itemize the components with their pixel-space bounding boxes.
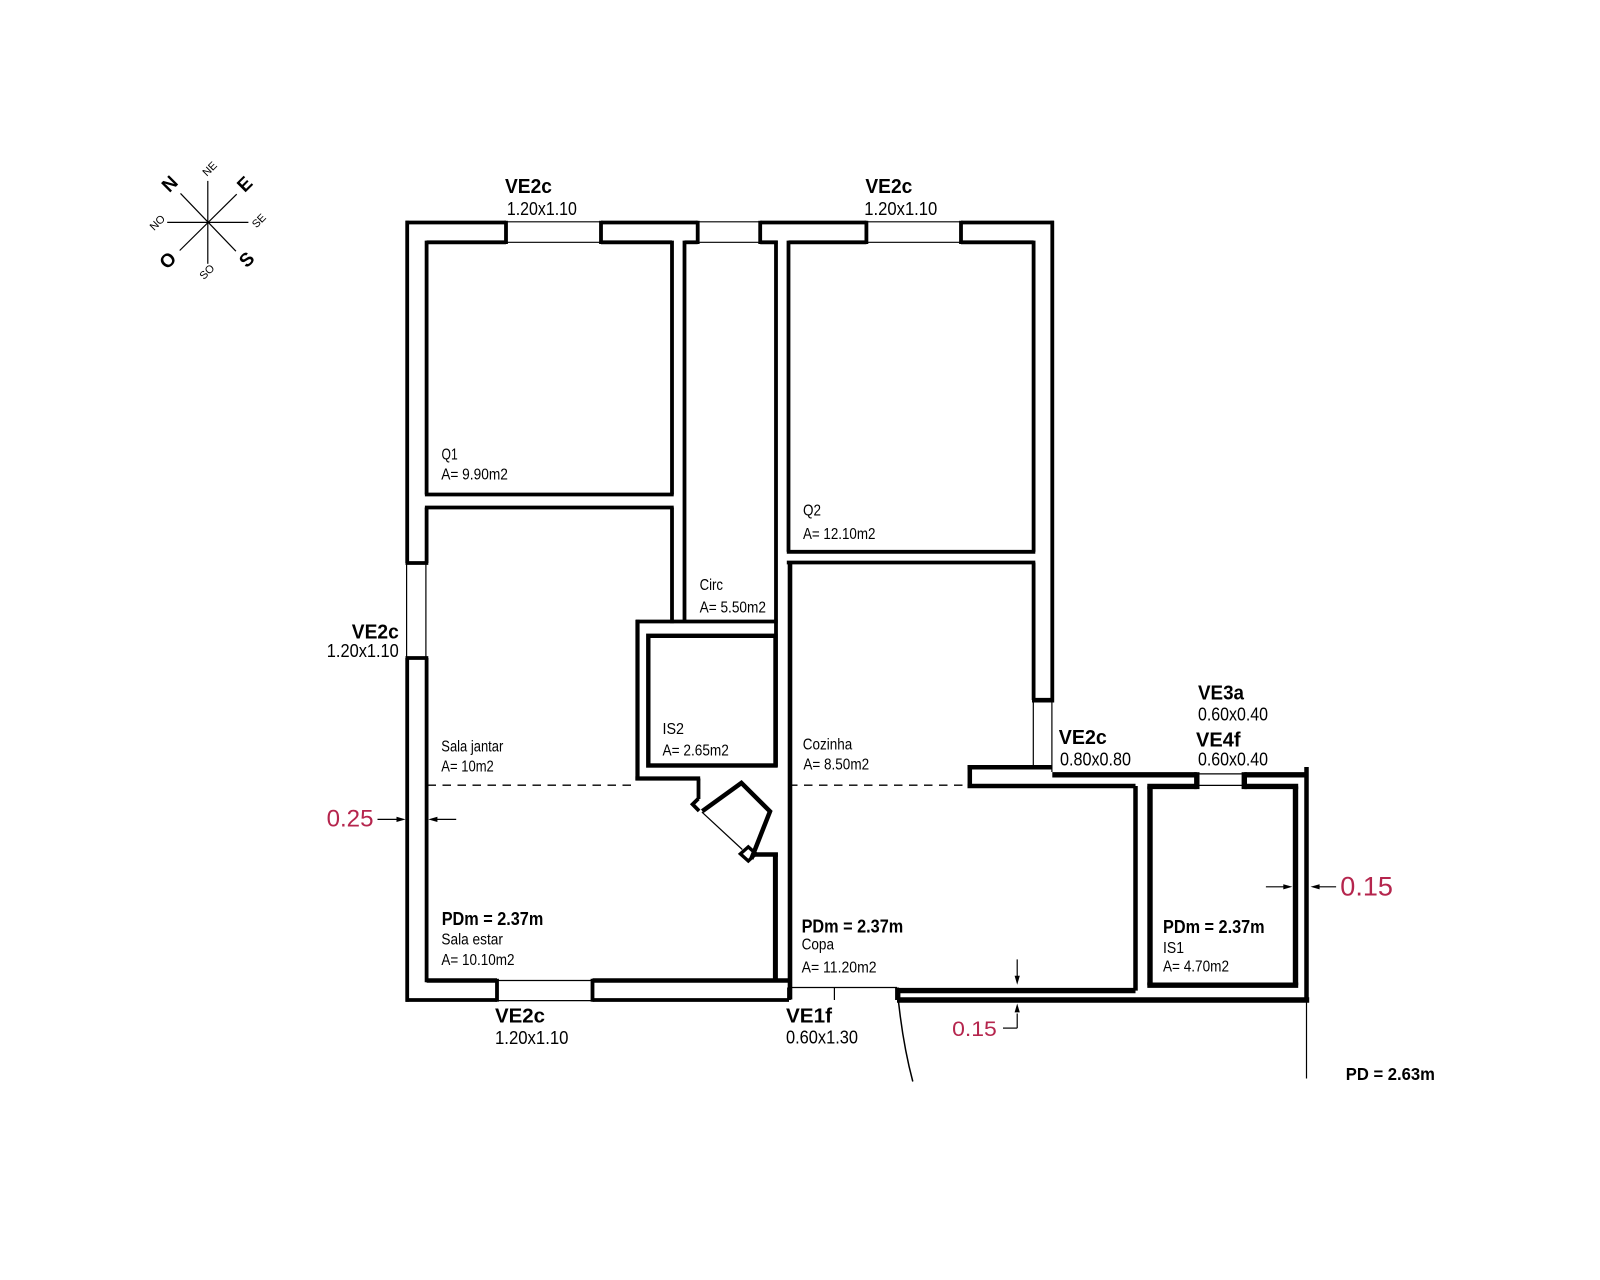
svg-text:VE1f: VE1f (786, 1006, 832, 1028)
svg-text:PDm = 2.37m: PDm = 2.37m (802, 917, 904, 937)
svg-text:0.80x0.80: 0.80x0.80 (1060, 750, 1131, 770)
svg-text:PDm = 2.37m: PDm = 2.37m (1163, 917, 1265, 937)
svg-text:A= 8.50m2: A= 8.50m2 (803, 757, 869, 774)
svg-text:A= 2.65m2: A= 2.65m2 (663, 743, 729, 760)
svg-text:IS1: IS1 (1163, 940, 1184, 957)
svg-text:Circ: Circ (700, 577, 724, 594)
svg-text:A= 10.10m2: A= 10.10m2 (441, 952, 514, 969)
svg-text:Cozinha: Cozinha (803, 737, 853, 754)
svg-text:PD = 2.63m: PD = 2.63m (1346, 1064, 1435, 1084)
svg-text:1.20x1.10: 1.20x1.10 (864, 199, 937, 219)
svg-text:VE2c: VE2c (495, 1006, 545, 1028)
svg-text:A= 10m2: A= 10m2 (441, 759, 494, 776)
svg-text:1.20x1.10: 1.20x1.10 (327, 641, 399, 661)
svg-text:0.60x1.30: 0.60x1.30 (786, 1028, 858, 1048)
svg-text:VE4f: VE4f (1196, 730, 1241, 752)
svg-text:A= 12.10m2: A= 12.10m2 (803, 526, 875, 543)
svg-text:1.20x1.10: 1.20x1.10 (507, 199, 577, 219)
svg-text:A= 5.50m2: A= 5.50m2 (700, 600, 766, 617)
svg-text:0.25: 0.25 (327, 806, 374, 833)
svg-text:VE3a: VE3a (1198, 683, 1245, 705)
svg-text:1.20x1.10: 1.20x1.10 (495, 1028, 569, 1048)
svg-text:Q1: Q1 (442, 447, 458, 464)
svg-text:0.15: 0.15 (1340, 872, 1393, 902)
svg-text:A= 4.70m2: A= 4.70m2 (1163, 959, 1229, 976)
svg-text:A= 9.90m2: A= 9.90m2 (441, 467, 508, 484)
svg-text:IS2: IS2 (663, 721, 685, 738)
svg-text:VE2c: VE2c (1059, 727, 1107, 749)
svg-text:0.60x0.40: 0.60x0.40 (1198, 750, 1268, 770)
svg-text:A= 11.20m2: A= 11.20m2 (802, 960, 877, 977)
svg-text:Q2: Q2 (803, 503, 821, 520)
svg-text:0.15: 0.15 (952, 1017, 997, 1041)
svg-text:PDm = 2.37m: PDm = 2.37m (442, 909, 544, 929)
svg-text:Copa: Copa (802, 937, 835, 954)
svg-text:Sala jantar: Sala jantar (441, 739, 503, 756)
svg-text:Sala estar: Sala estar (441, 932, 503, 949)
svg-text:VE2c: VE2c (865, 176, 912, 198)
svg-text:VE2c: VE2c (505, 176, 552, 198)
svg-text:0.60x0.40: 0.60x0.40 (1198, 705, 1268, 725)
